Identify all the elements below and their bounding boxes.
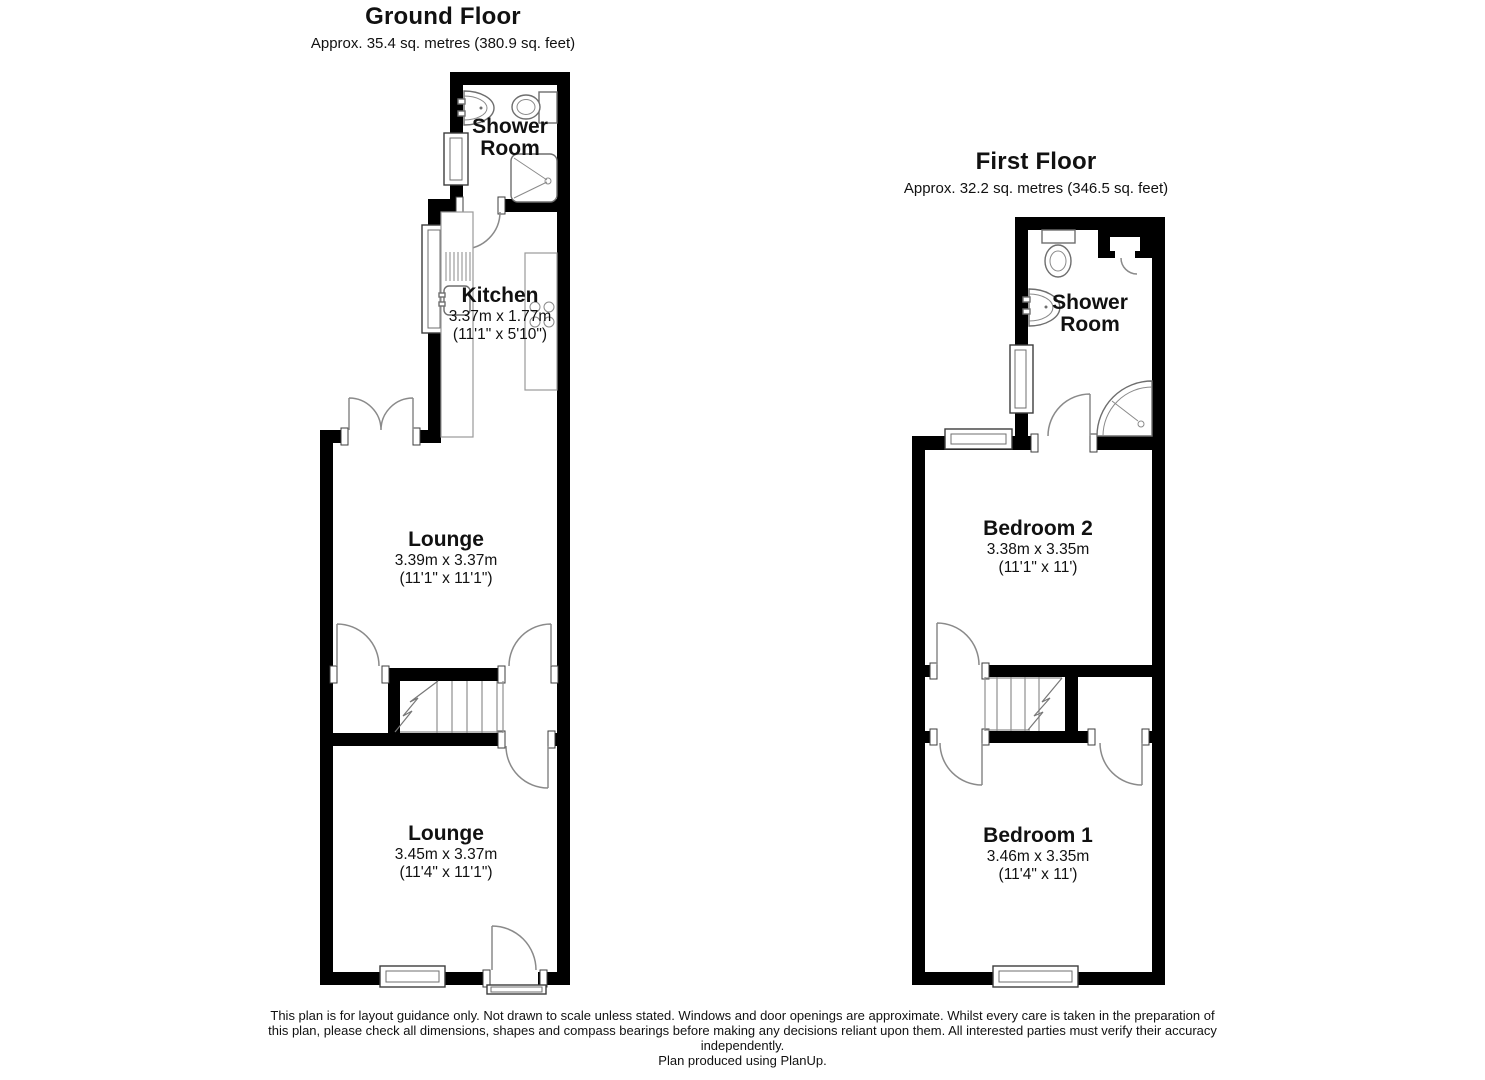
disclaimer-line: this plan, please check all dimensions, … [0,1023,1485,1038]
wall [912,436,925,985]
door-jamb [548,731,555,748]
room-dims-metric: 3.39m x 3.37m [395,552,498,569]
first-floor-plan: Shower Room Bedroom 2 3.38m x 3.35m (11'… [905,210,1170,1000]
room-label-shower: Shower [472,115,548,138]
door-jamb [341,428,348,445]
wall-opening [505,731,548,748]
room-dims-metric: 3.37m x 1.77m [449,308,552,325]
wall [1015,230,1028,345]
wall-opening [337,666,382,683]
wall [450,72,570,85]
room-label-lounge: Lounge [408,822,484,845]
wall [1152,217,1165,985]
alcove-opening [1115,251,1135,258]
door-jamb [1088,729,1095,745]
first-floor-title-block: First Floor Approx. 32.2 sq. metres (346… [866,148,1206,197]
floorplan-page: Ground Floor Approx. 35.4 sq. metres (38… [0,0,1485,1080]
french-door-arc [349,398,413,430]
wall [1065,677,1078,731]
window [993,966,1078,987]
room-dims-metric: 3.46m x 3.35m [987,848,1090,865]
door-jamb [1142,729,1149,745]
wall-opening [1038,434,1090,452]
room-dims-imperial: (11'4" x 11'1") [399,864,492,881]
front-door-step [487,985,546,994]
door-jamb [982,663,989,679]
room-label-shower: Shower [1052,291,1128,314]
door-jamb [413,428,420,445]
room-label-kitchen: Kitchen [461,284,538,307]
ground-floor-title-block: Ground Floor Approx. 35.4 sq. metres (38… [273,3,613,52]
room-label-bedroom1: Bedroom 1 [983,824,1093,847]
window [380,966,445,987]
staircase [395,681,503,733]
room-dims-imperial: (11'1" x 5'10") [453,326,547,343]
wall [557,72,570,985]
room-dims-imperial: (11'1" x 11') [999,559,1078,576]
disclaimer-line: This plan is for layout guidance only. N… [0,1008,1485,1023]
cupboard-door-arc [1121,258,1137,274]
first-floor-title: First Floor [866,148,1206,176]
room-dims-metric: 3.38m x 3.35m [987,541,1090,558]
alcove-interior [1110,237,1140,251]
room-label-shower: Room [1060,313,1120,336]
room-dims-metric: 3.45m x 3.37m [395,846,498,863]
wall [1015,217,1165,230]
room-dims-imperial: (11'1" x 11'1") [399,570,492,587]
room-dims-imperial: (11'4" x 11') [999,866,1078,883]
wall-opening [1095,729,1142,745]
door-jamb [498,731,505,748]
window [1010,345,1033,413]
window [945,429,1012,449]
door-jamb [498,666,505,683]
disclaimer: This plan is for layout guidance only. N… [0,1008,1485,1068]
door-jamb [930,729,937,745]
wall-opening [937,663,982,679]
door-jamb [982,729,989,745]
door-jamb [551,666,558,683]
ground-floor-plan: Shower Room Kitchen 3.37m x 1.77m (11'1"… [315,65,580,1000]
stair-break-line [395,681,438,732]
wall [428,212,441,225]
room-label-shower: Room [480,137,540,160]
door-arc [506,746,548,788]
door-arc [509,624,551,666]
door-jamb [1031,434,1038,452]
quadrant-shower-tray-icon [1097,381,1152,436]
door-arc [937,623,979,665]
door-jamb [498,197,505,214]
stair-break-line [1028,678,1062,730]
door-arc [337,624,379,666]
tap-icon [439,302,445,306]
first-floor-labels: Shower Room Bedroom 2 3.38m x 3.35m (11'… [983,291,1128,883]
wall [388,681,400,733]
disclaimer-line: independently. [0,1038,1485,1053]
wall [320,430,333,985]
shower-tray-icon [511,154,557,202]
wall [428,333,441,437]
tap-icon [439,293,445,297]
room-label-lounge: Lounge [408,528,484,551]
drainer-icon [446,252,470,281]
wall-opening [937,729,982,745]
staircase [985,677,1062,731]
wall-opening [505,666,551,683]
ground-floor-title: Ground Floor [273,3,613,31]
window [444,133,468,185]
door-arc [1100,743,1142,785]
door-jamb [382,666,389,683]
first-floor-subtitle: Approx. 32.2 sq. metres (346.5 sq. feet) [866,180,1206,197]
room-label-bedroom2: Bedroom 2 [983,517,1093,540]
door-arc [1048,394,1090,436]
wall [450,85,463,133]
ground-floor-subtitle: Approx. 35.4 sq. metres (380.9 sq. feet) [273,35,613,52]
front-door-arc [492,926,536,970]
disclaimer-credit: Plan produced using PlanUp. [0,1053,1485,1068]
wall-openings [337,428,551,987]
door-arc [940,743,982,785]
door-jamb [930,663,937,679]
door-jamb [1090,434,1097,452]
wall-opening [348,428,413,445]
door-jamb [330,666,337,683]
toilet-icon [1042,230,1075,277]
